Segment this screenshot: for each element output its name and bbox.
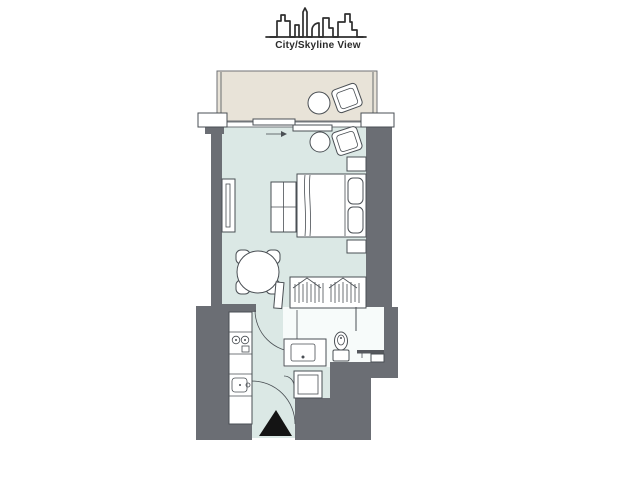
washing-machine-icon <box>294 371 322 398</box>
wardrobe <box>290 277 366 308</box>
corner-table <box>347 157 366 171</box>
toilet-icon <box>333 332 349 361</box>
double-bed <box>297 174 366 237</box>
kitchen-counter <box>229 312 252 424</box>
pillow <box>348 207 363 233</box>
pillow <box>348 178 363 204</box>
floor-plan-drawing <box>0 0 637 478</box>
tv-unit <box>271 182 296 232</box>
floor-plan-page: City/Skyline View <box>0 0 637 478</box>
city-skyline-icon <box>266 8 366 37</box>
vanity-sink <box>284 339 326 366</box>
wardrobe-door <box>274 282 284 309</box>
nightstand <box>347 240 366 253</box>
balcony-side-table <box>308 92 330 114</box>
dining-set <box>236 250 280 294</box>
view-label: City/Skyline View <box>275 40 360 51</box>
round-dining-table <box>237 251 279 293</box>
mirror <box>222 179 235 232</box>
room-side-table <box>310 132 330 152</box>
